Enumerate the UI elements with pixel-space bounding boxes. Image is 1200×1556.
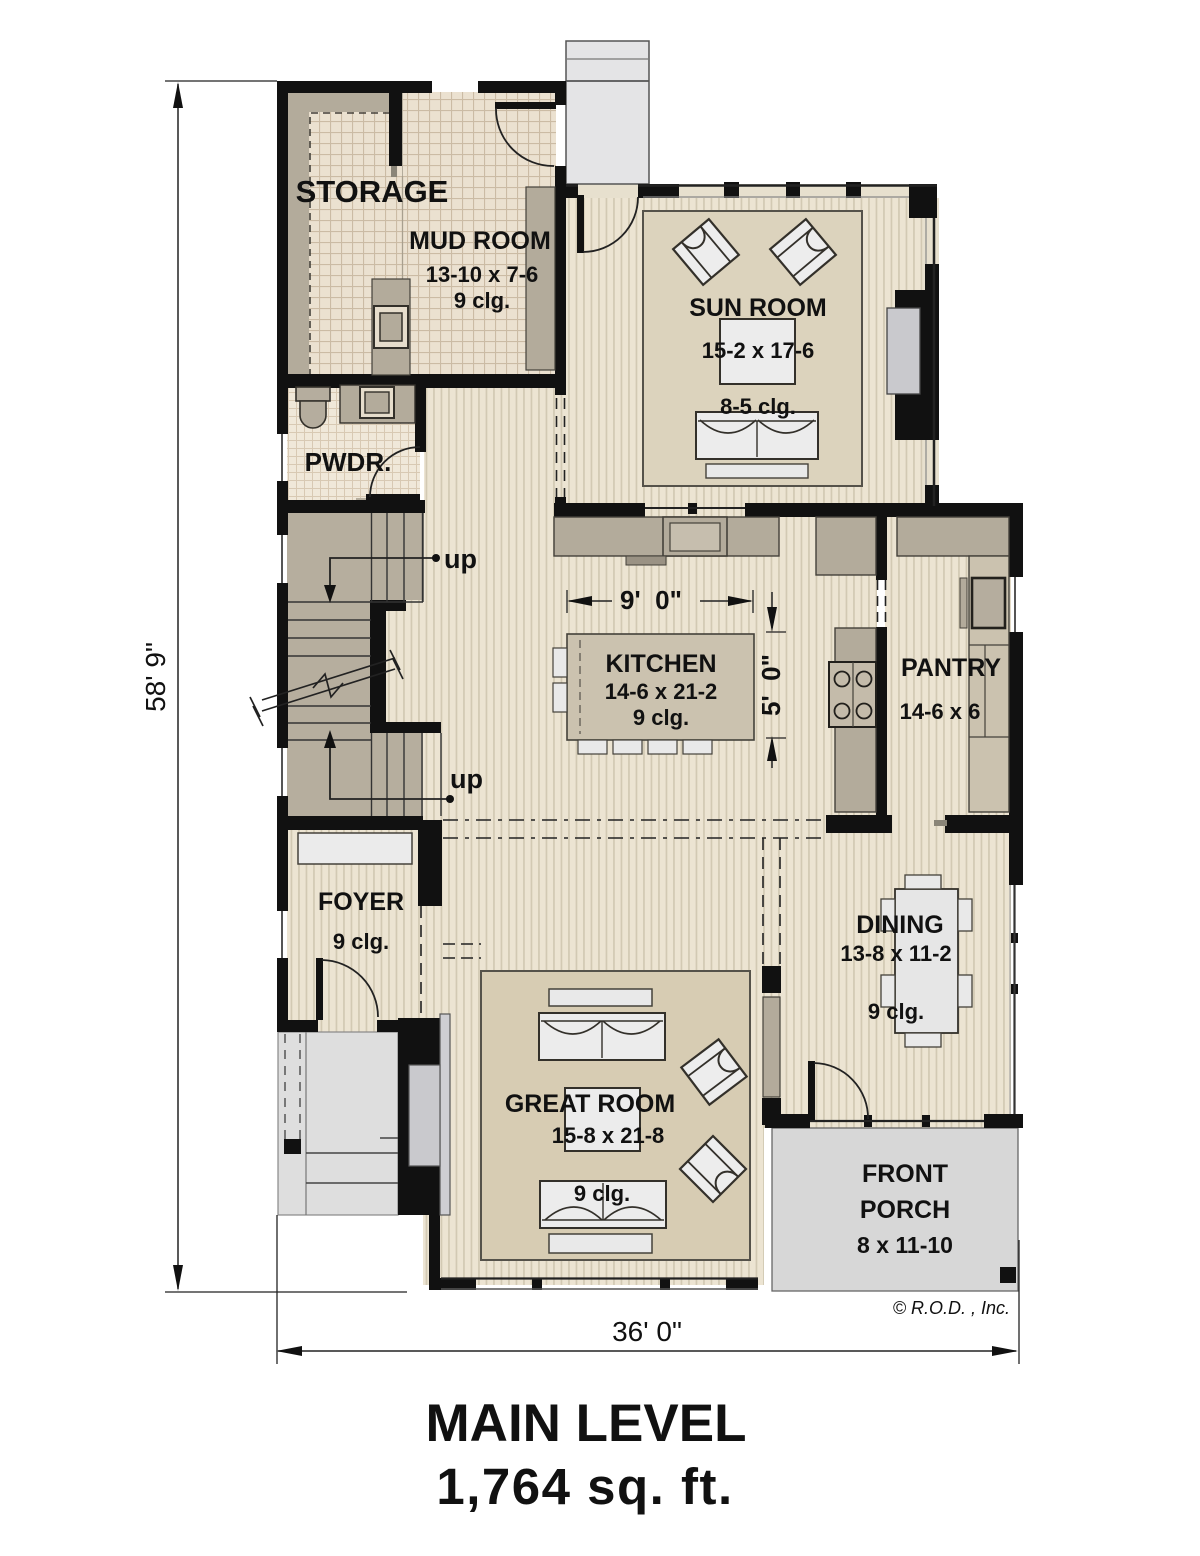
svg-text:9 clg.: 9 clg. [868,999,924,1024]
svg-text:PORCH: PORCH [860,1196,950,1224]
svg-text:STORAGE: STORAGE [296,174,449,209]
svg-text:14-6 x 6: 14-6 x 6 [900,699,981,724]
svg-text:5' 0": 5' 0" [756,654,786,716]
svg-text:PWDR.: PWDR. [305,447,392,477]
svg-text:up: up [450,764,483,794]
svg-text:PANTRY: PANTRY [901,654,1001,682]
svg-text:36' 0": 36' 0" [612,1316,682,1347]
svg-text:KITCHEN: KITCHEN [605,650,716,678]
svg-text:9' 0": 9' 0" [620,585,682,615]
svg-text:9 clg.: 9 clg. [633,705,689,730]
svg-text:SUN ROOM: SUN ROOM [689,294,827,322]
svg-text:9 clg.: 9 clg. [454,288,510,313]
svg-text:FRONT: FRONT [862,1160,948,1188]
svg-text:MAIN LEVEL: MAIN LEVEL [426,1394,747,1453]
svg-text:© R.O.D. , Inc.: © R.O.D. , Inc. [893,1298,1010,1318]
svg-text:up: up [444,544,477,574]
svg-text:GREAT ROOM: GREAT ROOM [505,1090,675,1118]
svg-text:15-2 x 17-6: 15-2 x 17-6 [702,338,815,363]
svg-text:14-6 x 21-2: 14-6 x 21-2 [605,679,718,704]
svg-text:8-5 clg.: 8-5 clg. [720,394,796,419]
svg-text:15-8 x 21-8: 15-8 x 21-8 [552,1123,665,1148]
svg-text:MUD ROOM: MUD ROOM [409,227,551,255]
svg-text:8 x 11-10: 8 x 11-10 [857,1232,953,1258]
svg-text:DINING: DINING [856,911,944,939]
svg-text:13-8 x 11-2: 13-8 x 11-2 [840,941,951,966]
svg-text:58' 9": 58' 9" [140,642,171,712]
svg-text:1,764 sq. ft.: 1,764 sq. ft. [436,1458,733,1515]
svg-text:9 clg.: 9 clg. [333,929,389,954]
svg-text:9 clg.: 9 clg. [574,1181,630,1206]
svg-text:13-10 x 7-6: 13-10 x 7-6 [426,262,539,287]
svg-text:FOYER: FOYER [318,888,404,916]
